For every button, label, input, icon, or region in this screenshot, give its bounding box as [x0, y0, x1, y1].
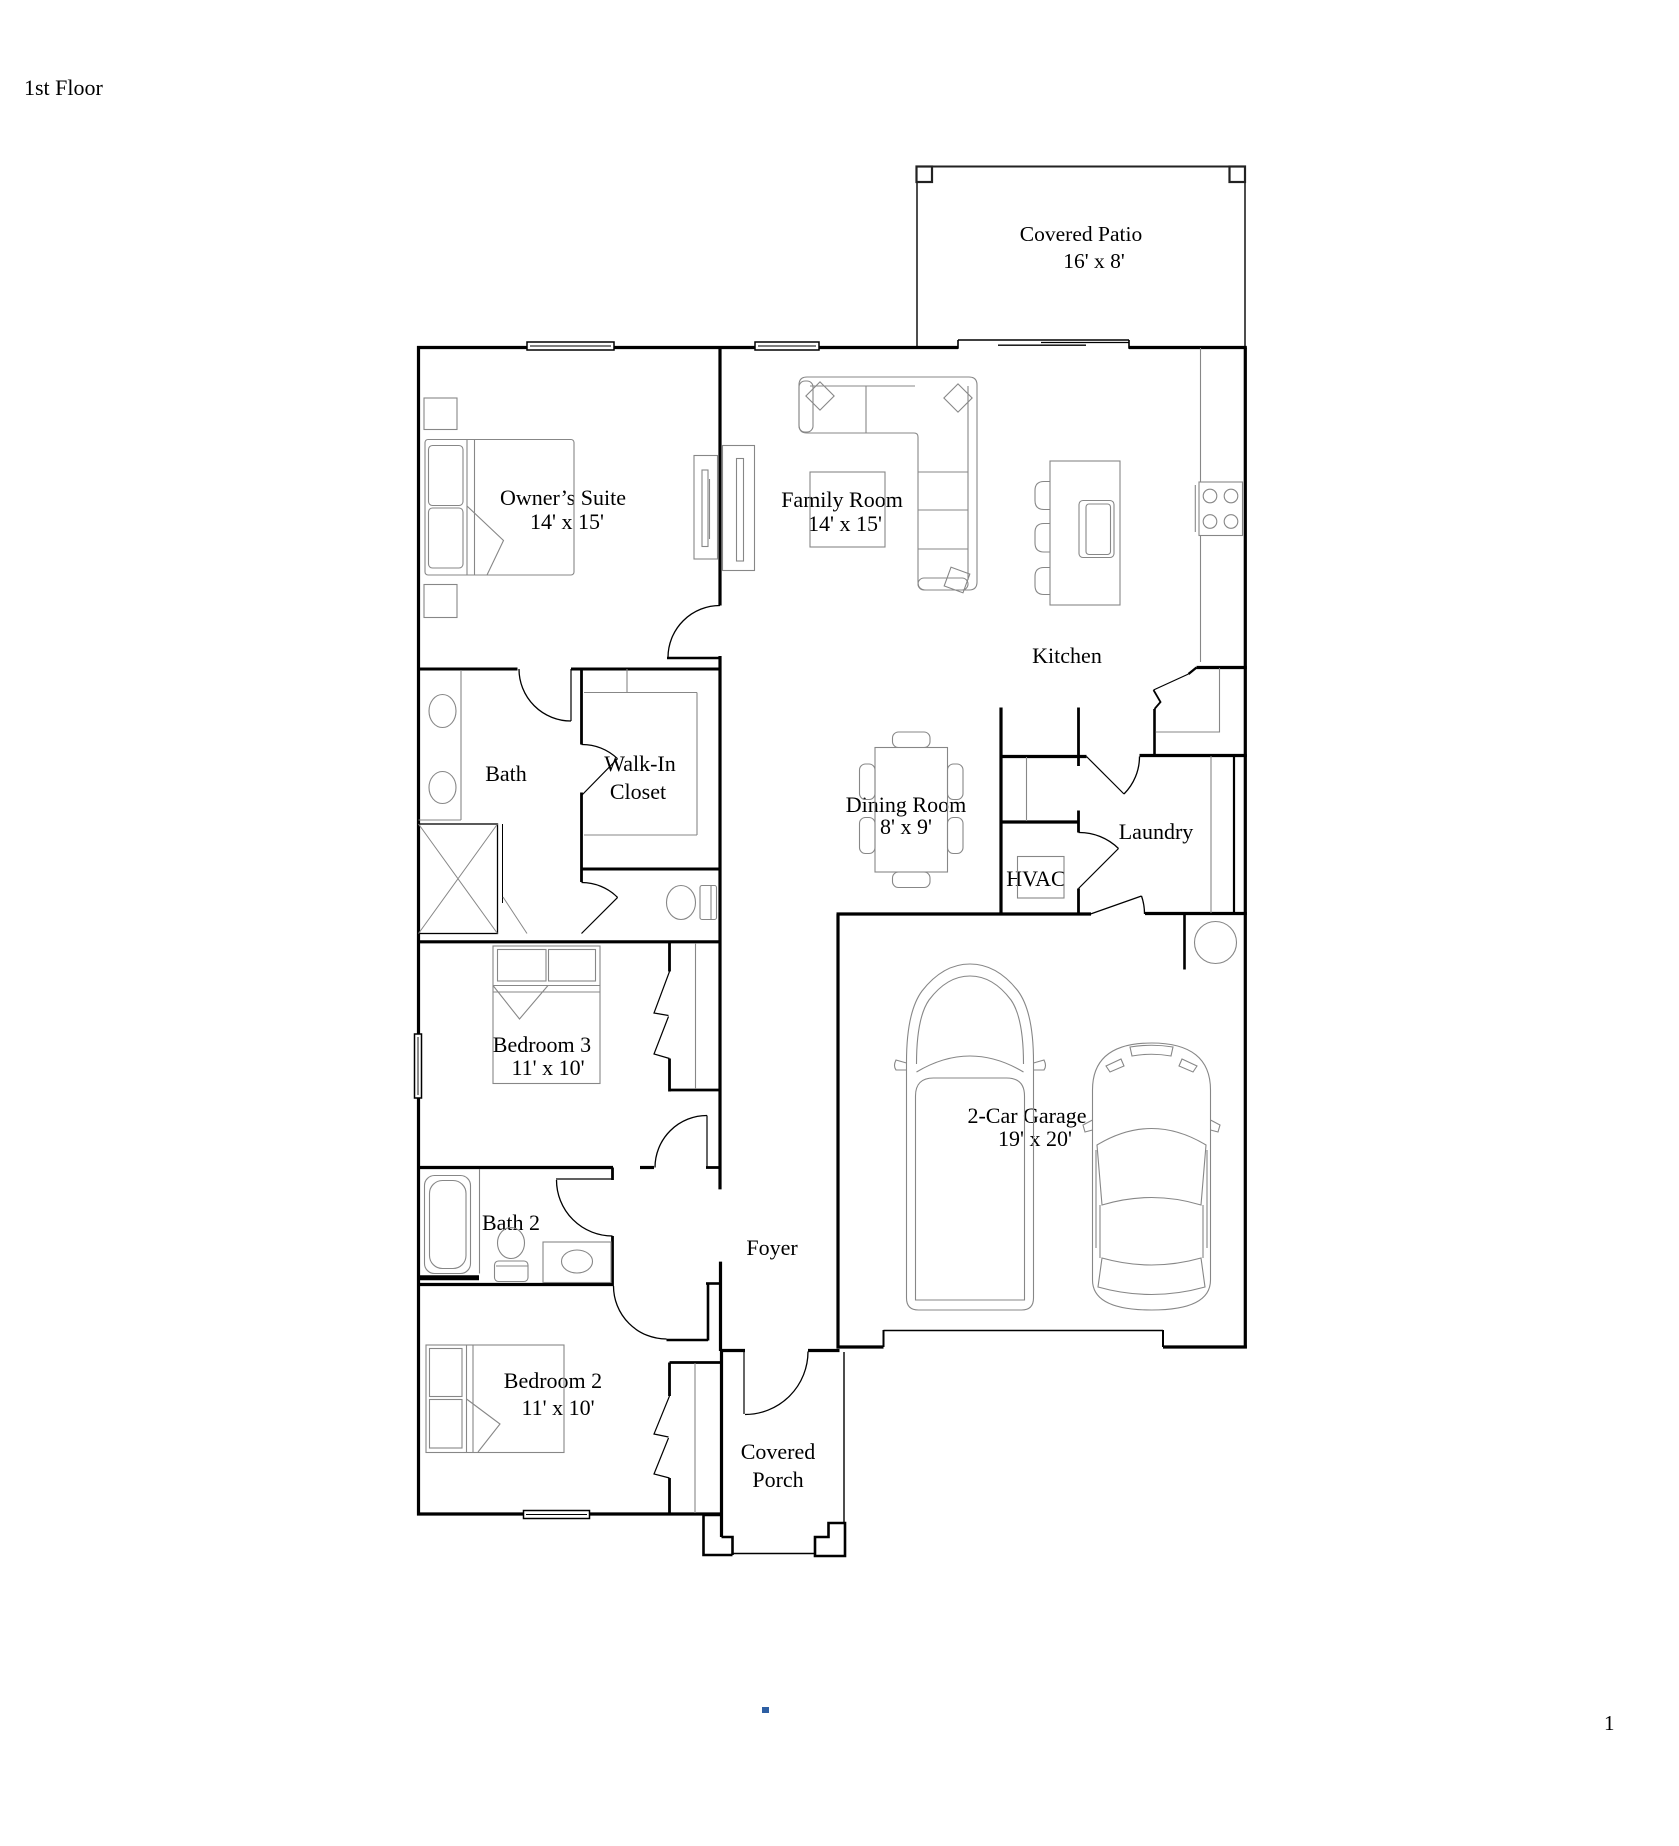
svg-text:Closet: Closet: [610, 779, 666, 804]
svg-text:Owner’s Suite: Owner’s Suite: [500, 485, 626, 510]
svg-text:Bath 2: Bath 2: [482, 1210, 540, 1235]
svg-text:Bedroom 3: Bedroom 3: [493, 1032, 591, 1057]
svg-text:14' x 15': 14' x 15': [808, 511, 882, 536]
svg-text:1st Floor: 1st Floor: [24, 75, 104, 100]
svg-text:Bedroom 2: Bedroom 2: [504, 1368, 602, 1393]
svg-text:14' x 15': 14' x 15': [530, 509, 604, 534]
svg-text:11' x 10': 11' x 10': [521, 1395, 594, 1420]
svg-text:19' x 20': 19' x 20': [998, 1126, 1072, 1151]
svg-text:Bath: Bath: [485, 761, 527, 786]
svg-text:2-Car Garage: 2-Car Garage: [967, 1103, 1086, 1128]
svg-text:16' x 8': 16' x 8': [1063, 249, 1125, 273]
svg-text:8' x 9': 8' x 9': [880, 814, 932, 839]
svg-text:Porch: Porch: [752, 1467, 803, 1492]
svg-text:Foyer: Foyer: [746, 1235, 798, 1260]
svg-text:Walk-In: Walk-In: [604, 751, 676, 776]
svg-text:11' x 10': 11' x 10': [511, 1055, 584, 1080]
svg-text:HVAC: HVAC: [1006, 866, 1066, 891]
svg-text:Covered: Covered: [741, 1439, 816, 1464]
svg-text:Laundry: Laundry: [1119, 819, 1194, 844]
svg-text:1: 1: [1604, 1711, 1615, 1735]
svg-text:Covered Patio: Covered Patio: [1020, 222, 1142, 246]
svg-text:Kitchen: Kitchen: [1032, 643, 1102, 668]
